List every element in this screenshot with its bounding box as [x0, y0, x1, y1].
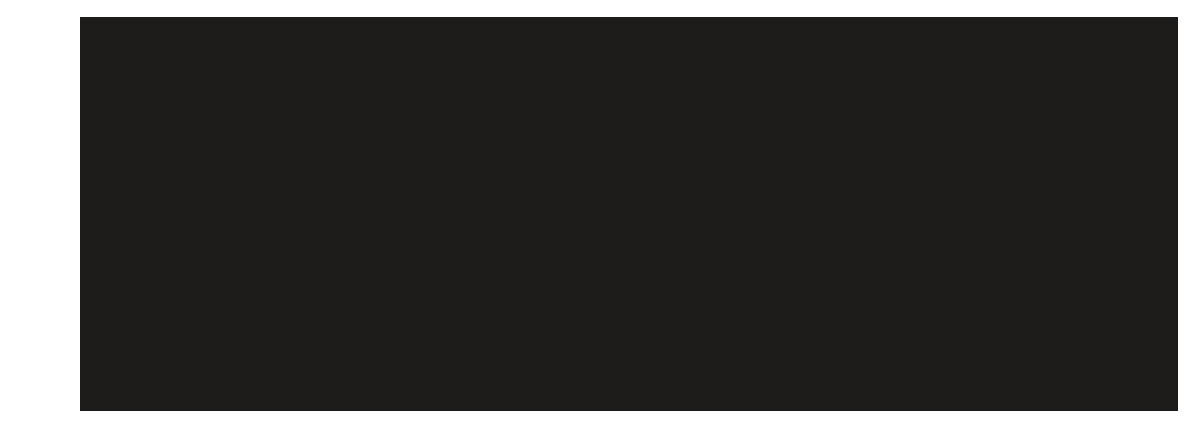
page-background — [0, 0, 1200, 427]
blank-screen-content — [80, 17, 1178, 411]
blank-black-screen — [80, 17, 1178, 411]
